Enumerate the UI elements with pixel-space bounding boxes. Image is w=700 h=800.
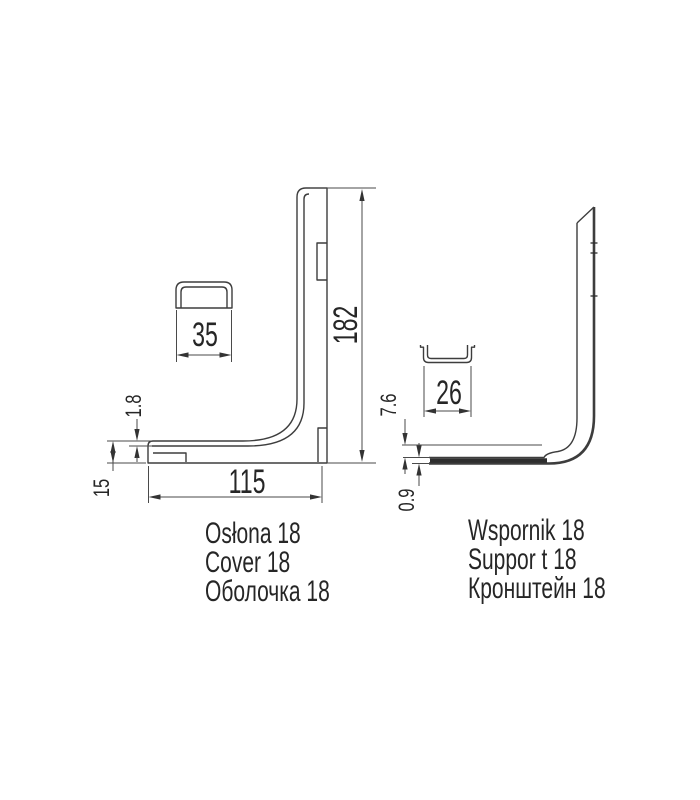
cover-label-en: Cover 18 [205,548,330,577]
dim-text-26: 26 [436,375,462,412]
dim-section-35: 35 [177,310,232,362]
support-left-line [429,223,577,458]
arrowhead [416,464,421,476]
cover-label-block: Osłona 18 Cover 18 Оболочка 18 [205,519,330,606]
dim-text-7-6: 7.6 [377,394,402,417]
arrowhead [177,352,189,357]
support-section-outer [421,345,475,363]
dim-section-26: 26 [424,366,471,417]
cover-label-ru: Оболочка 18 [205,577,330,606]
cover-label-pl: Osłona 18 [205,519,330,548]
dim-thickness-0-9: 0.9 [395,443,430,511]
support-top-slant [577,207,594,223]
arrowhead [310,494,322,499]
arrowhead [220,352,232,357]
cover-section-inner [181,287,227,308]
support-section-inner [428,345,468,359]
dim-text-15: 15 [90,479,115,497]
dim-width-115: 115 [149,464,323,503]
arrowhead [359,450,364,462]
arrowhead [134,446,139,458]
dim-text-1-8: 1.8 [122,395,147,418]
cover-latch-top [317,243,327,280]
support-right-line [429,207,594,464]
cover-hem-edge [153,453,186,462]
dim-text-0-9: 0.9 [395,489,420,512]
support-label-ru: Кронштейн 18 [468,574,606,603]
technical-drawing: 182 115 35 1.8 15 [0,0,700,800]
arrowhead [359,189,364,201]
arrowhead [149,494,161,499]
dim-text-35: 35 [192,317,218,354]
cover-latch-bottom [318,428,327,462]
cover-profile [148,188,327,463]
arrowhead [110,451,115,463]
arrowhead [402,458,407,470]
support-label-pl: Wspornik 18 [468,516,606,545]
arrowhead [416,446,421,458]
arrowhead [134,429,139,441]
arrowhead [424,408,436,413]
dim-text-115: 115 [229,464,266,501]
support-profile [421,207,598,464]
dim-height-182: 182 [310,188,376,463]
support-label-block: Wspornik 18 Suppor t 18 Кронштейн 18 [468,516,606,603]
dim-text-182: 182 [328,306,365,345]
cover-inner-line [152,194,309,446]
cover-section-outer [176,282,232,308]
arrowhead [402,433,407,445]
support-label-en: Suppor t 18 [468,545,606,574]
